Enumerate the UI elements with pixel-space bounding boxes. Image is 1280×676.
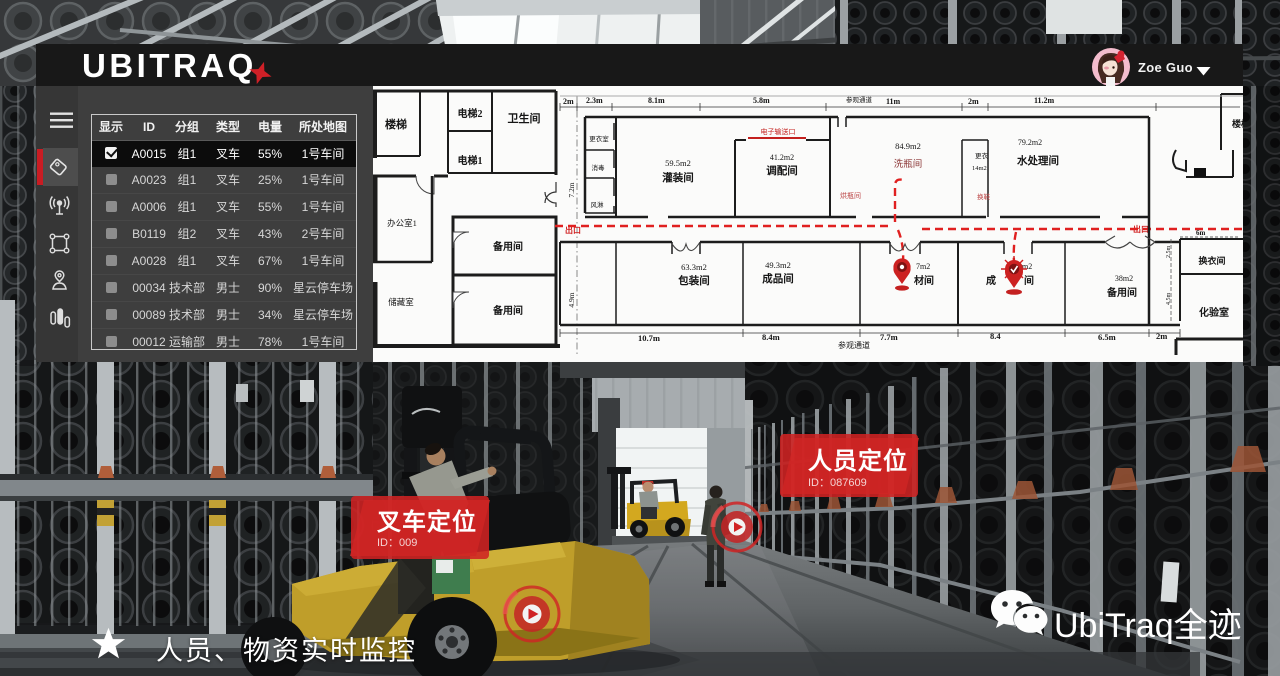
svg-text:6m: 6m xyxy=(1196,229,1206,237)
svg-text:消毒: 消毒 xyxy=(592,163,606,172)
svg-text:换衣间: 换衣间 xyxy=(1198,255,1225,266)
svg-text:8.4m: 8.4m xyxy=(762,332,780,342)
svg-text:卫生间: 卫生间 xyxy=(508,111,541,125)
svg-text:8.4: 8.4 xyxy=(990,331,1001,341)
svg-text:楼梯: 楼梯 xyxy=(1232,118,1243,129)
svg-text:洗瓶间: 洗瓶间 xyxy=(894,158,923,170)
svg-text:79.2m2: 79.2m2 xyxy=(1018,138,1042,147)
svg-text:8.1m: 8.1m xyxy=(648,96,665,105)
svg-text:63.3m2: 63.3m2 xyxy=(681,262,707,272)
svg-text:11.2m: 11.2m xyxy=(1034,96,1055,105)
svg-text:风淋: 风淋 xyxy=(591,200,605,209)
svg-text:电梯2: 电梯2 xyxy=(458,107,483,120)
svg-text:7m2: 7m2 xyxy=(916,262,930,271)
svg-text:参观通道: 参观通道 xyxy=(838,340,870,350)
svg-text:2.3m: 2.3m xyxy=(586,96,603,105)
svg-text:2.5m: 2.5m xyxy=(1166,246,1172,259)
svg-text:材间: 材间 xyxy=(914,274,934,287)
svg-text:更衣: 更衣 xyxy=(975,151,989,160)
svg-text:办公室1: 办公室1 xyxy=(387,218,417,228)
svg-text:41.2m2: 41.2m2 xyxy=(770,153,794,162)
svg-text:调配间: 调配间 xyxy=(766,164,798,177)
svg-text:电梯1: 电梯1 xyxy=(458,154,483,167)
svg-text:10.7m: 10.7m xyxy=(638,333,660,343)
svg-text:备用间: 备用间 xyxy=(492,304,523,317)
svg-text:成品间: 成品间 xyxy=(762,272,794,285)
svg-text:化验室: 化验室 xyxy=(1199,306,1229,319)
svg-text:7.7m: 7.7m xyxy=(880,332,898,342)
svg-text:14m2: 14m2 xyxy=(972,165,987,172)
svg-text:包装间: 包装间 xyxy=(678,274,710,287)
svg-text:间: 间 xyxy=(1024,274,1034,287)
svg-text:59.5m2: 59.5m2 xyxy=(665,158,691,168)
svg-text:成: 成 xyxy=(986,274,996,287)
svg-text:灌装间: 灌装间 xyxy=(662,171,694,184)
svg-text:11m: 11m xyxy=(886,97,901,106)
svg-text:4.5m: 4.5m xyxy=(1166,293,1172,306)
svg-text:水处理间: 水处理间 xyxy=(1016,154,1059,167)
svg-text:6.5m: 6.5m xyxy=(1098,332,1116,342)
svg-text:烘瓶间: 烘瓶间 xyxy=(840,191,861,200)
svg-text:4.9m: 4.9m xyxy=(567,292,576,307)
svg-text:储藏室: 储藏室 xyxy=(388,297,414,307)
svg-text:楼梯: 楼梯 xyxy=(385,117,407,131)
svg-text:备用间: 备用间 xyxy=(1106,286,1137,299)
svg-text:2m: 2m xyxy=(563,97,574,106)
svg-text:更衣室: 更衣室 xyxy=(589,134,609,143)
svg-text:2m: 2m xyxy=(968,97,979,106)
svg-text:5.8m: 5.8m xyxy=(753,96,770,105)
svg-text:38m2: 38m2 xyxy=(1115,274,1133,283)
svg-text:换鞋: 换鞋 xyxy=(977,192,991,201)
svg-text:2m: 2m xyxy=(1156,331,1167,341)
svg-text:备用间: 备用间 xyxy=(492,240,523,253)
svg-text:49.3m2: 49.3m2 xyxy=(765,260,791,270)
svg-text:电子输送口: 电子输送口 xyxy=(761,127,796,136)
svg-text:7.2m: 7.2m xyxy=(567,182,576,197)
svg-text:84.9m2: 84.9m2 xyxy=(895,141,921,151)
